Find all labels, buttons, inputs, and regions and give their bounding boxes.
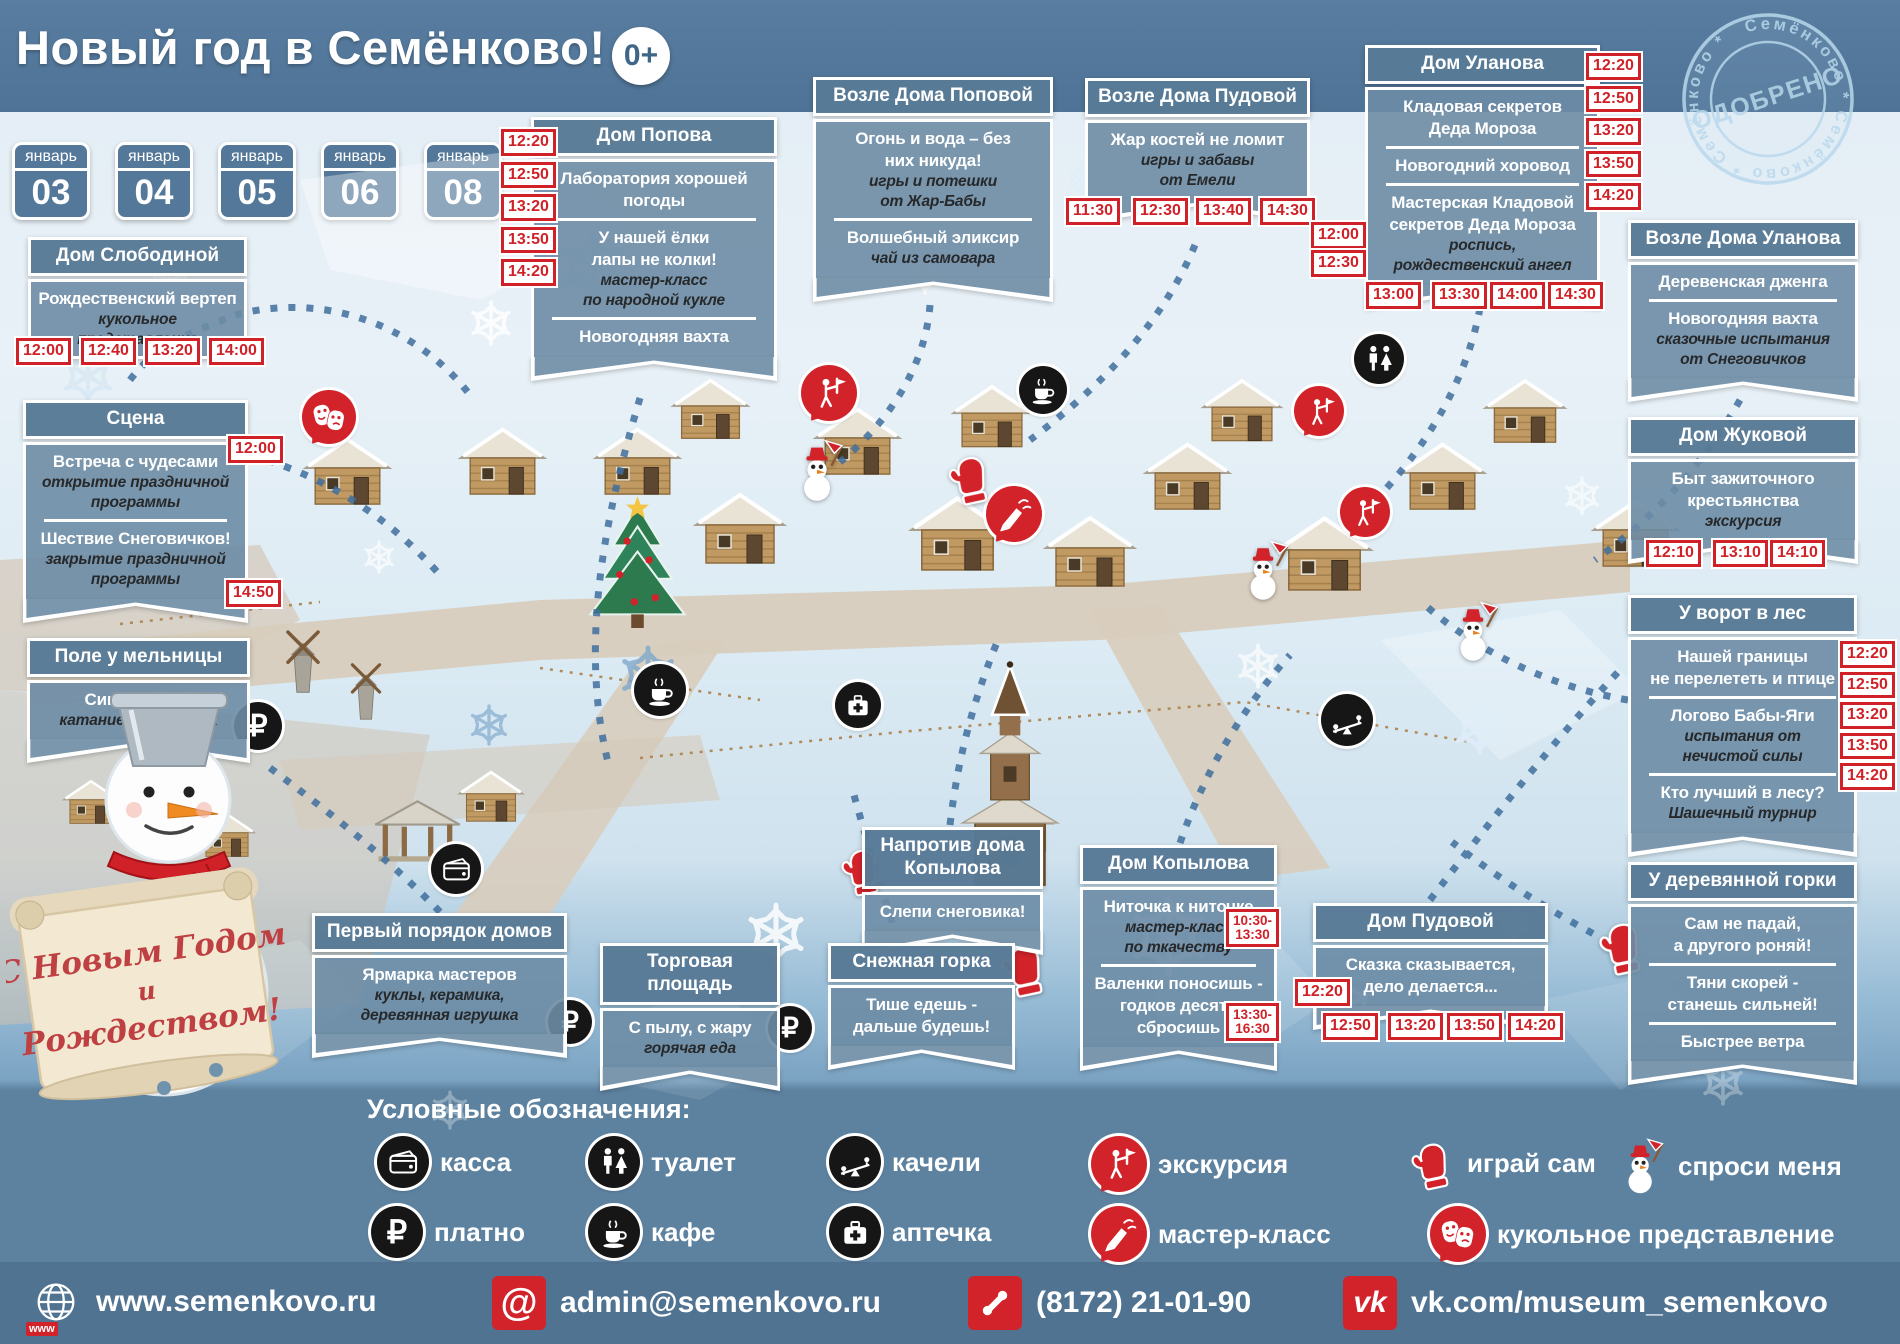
banner-dom-popova: Дом ПоповаЛаборатория хорошейпогодыУ наш… <box>531 117 777 381</box>
legend-item-спроси-меня: спроси меня <box>1615 1136 1842 1196</box>
banner-divider <box>1101 964 1256 967</box>
master-class-icon <box>1091 1206 1147 1262</box>
event-entry: Лаборатория хорошейпогоды <box>538 168 770 212</box>
event-text: Сказка сказывается, <box>1320 954 1541 976</box>
banner-body: Ярмарка мастеровкуклы, керамика,деревянн… <box>312 955 567 1034</box>
ruble-glyph: ₽ <box>781 1012 798 1044</box>
time-badge: 14:10 <box>1770 540 1825 567</box>
event-text: кукольное <box>35 310 240 330</box>
event-text: Валенки поносишь - <box>1087 973 1270 995</box>
legend-item-касса: касса <box>377 1136 511 1188</box>
banner-title: У ворот в лес <box>1628 595 1857 634</box>
event-entry: Кладовая секретовДеда Мороза <box>1372 96 1593 140</box>
event-text: Шествие Снеговичков! <box>30 528 241 550</box>
first-aid-icon <box>829 1206 881 1258</box>
time-badge: 12:50 <box>1840 672 1895 699</box>
event-entry: Огонь и вода – безних никуда!игры и поте… <box>820 128 1046 212</box>
banner-title: Дом Слободиной <box>28 237 247 276</box>
event-entry: Жар костей не ломитигры и забавыот Емели <box>1092 129 1303 191</box>
event-entry: Новогодний хоровод <box>1372 155 1593 177</box>
event-text: сказочные испытания <box>1635 330 1851 350</box>
time-badge: 11:30 <box>1066 198 1120 225</box>
event-text: открытие праздничной <box>30 473 241 493</box>
seesaw-icon <box>1321 694 1373 746</box>
event-text: чай из самовара <box>820 249 1046 269</box>
event-text: закрытие праздничной <box>30 550 241 570</box>
event-entry: Шествие Снеговичков!закрытие праздничной… <box>30 528 241 590</box>
time-badge: 13:20 <box>1388 1013 1443 1040</box>
event-text: Рождественский вертеп <box>35 288 240 310</box>
event-text: Деревенская дженга <box>1635 271 1851 293</box>
legend-label: аптечка <box>892 1217 991 1248</box>
banner-vozle-doma-ulanova: Возле Дома УлановаДеревенская дженгаНово… <box>1628 220 1858 402</box>
event-entry: Слепи снеговика! <box>869 901 1036 923</box>
banner-title: Дом Попова <box>531 117 777 156</box>
event-text: Огонь и вода – без <box>820 128 1046 150</box>
banner-title: Торговаяплощадь <box>600 943 780 1005</box>
legend-item-туалет: туалет <box>588 1136 736 1188</box>
time-badge: 13:00 <box>1366 282 1421 309</box>
event-text: деревянная игрушка <box>319 1006 560 1026</box>
event-entry: Новогодняя вахта <box>538 326 770 348</box>
banner-body: Огонь и вода – безних никуда!игры и поте… <box>813 119 1053 278</box>
event-text: Встреча с чудесами <box>30 451 241 473</box>
time-badge: 12:30 <box>1311 250 1366 277</box>
legend-item-качели: качели <box>829 1136 981 1188</box>
banner-body: Сам не падай,а другого роняй!Тяни скорей… <box>1628 904 1857 1061</box>
approved-stamp: Семёнково * Семёнково * Семёнково * ОДОБ… <box>1645 2 1895 202</box>
legend-item-экскурсия: экскурсия <box>1091 1136 1288 1192</box>
cash-desk-icon <box>431 844 481 894</box>
event-text: Новогодний хоровод <box>1372 155 1593 177</box>
legend-label: играй сам <box>1467 1148 1596 1179</box>
time-badge: 13:50 <box>1447 1013 1502 1040</box>
event-text: крестьянства <box>1635 490 1851 512</box>
event-text: а другого роняй! <box>1635 935 1850 957</box>
time-badge: 12:50 <box>1323 1013 1378 1040</box>
legend-item-играй-сам: играй сам <box>1404 1136 1596 1191</box>
vk-icon: vk <box>1343 1276 1397 1330</box>
ask-me-snowman-icon <box>789 437 847 504</box>
snowman-mascot: С Новым Годом и Рождеством! <box>6 640 346 1130</box>
event-text: от Снеговичков <box>1635 350 1851 370</box>
event-text: Тише едешь - <box>835 994 1008 1016</box>
excursion-icon <box>801 365 857 421</box>
legend-title: Условные обозначения: <box>367 1094 691 1125</box>
time-badge: 12:20 <box>1295 979 1350 1006</box>
banner-body: Жар костей не ломитигры и забавыот Емели <box>1085 120 1310 199</box>
time-badge: 12:00 <box>228 436 283 463</box>
time-badge: 13:20 <box>501 194 556 221</box>
legend-label: мастер-класс <box>1158 1219 1331 1250</box>
globe-icon: www <box>30 1276 82 1328</box>
banner-title: Сцена <box>23 400 248 439</box>
toilet-icon <box>1354 334 1404 384</box>
banner-title: Возле Дома Уланова <box>1628 220 1858 259</box>
ask-me-snowman-icon <box>1236 538 1292 603</box>
event-text: экскурсия <box>1635 512 1851 532</box>
excursion-icon <box>1091 1136 1147 1192</box>
time-badge: 10:30- 13:30 <box>1226 909 1279 947</box>
contact-text[interactable]: vk.com/museum_semenkovo <box>1411 1286 1828 1320</box>
event-entry: Деревенская дженга <box>1635 271 1851 293</box>
legend-label: туалет <box>651 1147 736 1178</box>
time-badge: 13:20 <box>1586 118 1641 145</box>
www-mini-badge: www <box>26 1322 58 1336</box>
banner-title: Дом Копылова <box>1080 845 1277 884</box>
ruble-glyph: ₽ <box>387 1213 408 1251</box>
time-badge: 14:30 <box>1548 282 1603 309</box>
legend-label: экскурсия <box>1158 1149 1288 1180</box>
banner-title: Снежная горка <box>828 943 1015 982</box>
banner-title: Напротив домаКопылова <box>862 827 1043 889</box>
event-entry: Сказка сказывается,дело делается... <box>1320 954 1541 998</box>
banner-perviy-poryadok-domov: Первый порядок домовЯрмарка мастеровкукл… <box>312 913 567 1058</box>
time-badge: 12:10 <box>1646 540 1701 567</box>
banner-title: Возле Дома Пудовой <box>1085 78 1310 117</box>
legend-label: качели <box>892 1147 981 1178</box>
time-badge: 14:20 <box>1840 763 1895 790</box>
contact-text[interactable]: (8172) 21-01-90 <box>1036 1286 1251 1320</box>
time-badge: 13:30- 16:30 <box>1226 1003 1279 1041</box>
legend-label: кукольное представление <box>1497 1219 1834 1250</box>
event-text: секретов Деда Мороза <box>1372 214 1593 236</box>
ask-me-snowman-icon <box>1446 599 1502 664</box>
event-text: дальше будешь! <box>835 1016 1008 1038</box>
event-text: Лаборатория хорошей <box>538 168 770 190</box>
banner-vozle-doma-pudovoy: Возле Дома ПудовойЖар костей не ломитигр… <box>1085 78 1310 223</box>
cafe-icon <box>1019 366 1067 414</box>
time-badge: 13:20 <box>145 338 200 365</box>
banner-snezhnaya-gorka: Снежная горкаТише едешь -дальше будешь! <box>828 943 1015 1070</box>
time-badge: 14:50 <box>226 580 281 607</box>
time-badge: 13:20 <box>1840 702 1895 729</box>
time-badge: 13:30 <box>1432 282 1487 309</box>
excursion-icon <box>1294 386 1344 436</box>
banner-u-derevyannoy-gorki: У деревянной горкиСам не падай,а другого… <box>1628 862 1857 1085</box>
banner-dom-slobodinoy: Дом СлободинойРождественский вертепкукол… <box>28 237 247 359</box>
event-text: горячая еда <box>607 1039 773 1059</box>
time-badge: 14:00 <box>1490 282 1545 309</box>
banner-divider <box>834 218 1032 221</box>
event-text: Слепи снеговика! <box>869 901 1036 923</box>
event-text: Сам не падай, <box>1635 913 1850 935</box>
banner-vozle-doma-popovoy: Возле Дома ПоповойОгонь и вода – безних … <box>813 77 1053 302</box>
time-badge: 13:50 <box>501 227 556 254</box>
event-text: Ярмарка мастеров <box>319 964 560 986</box>
event-text: дело делается... <box>1320 976 1541 998</box>
event-map-poster: Новый год в Семёнково! 0+ Семёнково * Се… <box>0 0 1900 1344</box>
event-text: погоды <box>538 190 770 212</box>
banner-title: У деревянной горки <box>1628 862 1857 901</box>
mitten-icon <box>1399 1131 1461 1196</box>
event-text: Кто лучший в лесу? <box>1635 782 1850 804</box>
banner-title: Дом Пудовой <box>1313 903 1548 942</box>
banner-divider <box>552 317 756 320</box>
event-text: испытания от <box>1635 727 1850 747</box>
event-text: Мастерская Кладовой <box>1372 192 1593 214</box>
event-text: Волшебный эликсир <box>820 227 1046 249</box>
contact-text[interactable]: www.semenkovo.ru <box>96 1285 377 1319</box>
banner-body: С пылу, с жаругорячая еда <box>600 1008 780 1067</box>
event-entry: Мастерская Кладовойсекретов Деда Морозар… <box>1372 192 1593 276</box>
contact-text[interactable]: admin@semenkovo.ru <box>560 1286 881 1320</box>
banner-title: Возле Дома Поповой <box>813 77 1053 116</box>
play-yourself-mitten-icon <box>936 444 1001 511</box>
contact-at-icon[interactable]: @admin@semenkovo.ru <box>492 1276 881 1330</box>
event-text: программы <box>30 570 241 590</box>
event-text: Логово Бабы-Яги <box>1635 705 1850 727</box>
banner-body: Кладовая секретовДеда МорозаНовогодний х… <box>1365 87 1600 285</box>
event-text: Новогодняя вахта <box>1635 308 1851 330</box>
event-text: Деда Мороза <box>1372 118 1593 140</box>
toilet-icon <box>588 1136 640 1188</box>
banner-body: Лаборатория хорошейпогодыУ нашей ёлкилап… <box>531 159 777 357</box>
event-text: Кладовая секретов <box>1372 96 1593 118</box>
event-text: Нашей границы <box>1635 646 1850 668</box>
event-text: Быстрее ветра <box>1635 1031 1850 1053</box>
event-text: игры и забавы <box>1092 151 1303 171</box>
legend-label: спроси меня <box>1678 1151 1842 1182</box>
time-badge: 14:30 <box>1260 198 1315 225</box>
banner-divider <box>552 218 756 221</box>
banner-dom-zhukovoy: Дом ЖуковойБыт зажиточногокрестьянстваэк… <box>1628 417 1858 564</box>
event-text: Шашечный турнир <box>1635 804 1850 824</box>
banner-divider <box>1649 696 1836 699</box>
event-text: мастер-класс <box>538 271 770 291</box>
legend-item-кукольное-представление: кукольное представление <box>1430 1206 1834 1262</box>
event-text: от Жар-Бабы <box>820 192 1046 212</box>
cash-desk-icon <box>377 1136 429 1188</box>
excursion-icon <box>1340 487 1390 537</box>
banner-dom-ulanova: Дом УлановаКладовая секретовДеда МорозаН… <box>1365 45 1600 309</box>
banner-body: Деревенская дженгаНовогодняя вахтасказоч… <box>1628 262 1858 378</box>
event-entry: Нашей границыне перелететь и птице <box>1635 646 1850 690</box>
event-text: станешь сильней! <box>1635 994 1850 1016</box>
phone-icon <box>968 1276 1022 1330</box>
banner-title: Дом Жуковой <box>1628 417 1858 456</box>
event-text: лапы не колки! <box>538 249 770 271</box>
time-badge: 12:20 <box>501 129 556 156</box>
first-aid-icon <box>835 682 881 728</box>
event-text: по народной кукле <box>538 291 770 311</box>
event-entry: Волшебный эликсирчай из самовара <box>820 227 1046 269</box>
event-entry: Быт зажиточногокрестьянстваэкскурсия <box>1635 468 1851 532</box>
event-entry: Сам не падай,а другого роняй! <box>1635 913 1850 957</box>
time-badge: 14:20 <box>1586 183 1641 210</box>
cafe-icon <box>634 664 686 716</box>
event-text: них никуда! <box>820 150 1046 172</box>
event-entry: Быстрее ветра <box>1635 1031 1850 1053</box>
time-badge: 13:50 <box>1840 733 1895 760</box>
legend-label: касса <box>440 1147 511 1178</box>
time-badge: 12:20 <box>1586 53 1641 80</box>
time-badge: 14:20 <box>1508 1013 1563 1040</box>
banner-title: Первый порядок домов <box>312 913 567 952</box>
banner-body: Встреча с чудесамиоткрытие праздничнойпр… <box>23 442 248 599</box>
banner-body: Слепи снеговика! <box>862 892 1043 931</box>
banner-dom-pudovoy: Дом ПудовойСказка сказывается,дело делае… <box>1313 903 1548 1030</box>
banner-u-vorot-v-les: У ворот в лесНашей границыне перелететь … <box>1628 595 1857 857</box>
event-text: Новогодняя вахта <box>538 326 770 348</box>
puppet-show-icon <box>1430 1206 1486 1262</box>
event-entry: С пылу, с жаругорячая еда <box>607 1017 773 1059</box>
time-badge: 12:30 <box>1133 198 1188 225</box>
contact-phone-icon[interactable]: (8172) 21-01-90 <box>968 1276 1251 1330</box>
event-text: Быт зажиточного <box>1635 468 1851 490</box>
time-badge: 13:10 <box>1713 540 1768 567</box>
event-text: рождественский ангел <box>1372 256 1593 276</box>
banner-divider <box>1649 299 1837 302</box>
event-entry: У нашей ёлкилапы не колки!мастер-класспо… <box>538 227 770 311</box>
time-badge: 13:40 <box>1196 198 1251 225</box>
time-badge: 12:00 <box>1311 222 1366 249</box>
puppet-show-icon <box>302 390 356 444</box>
snowman-icon <box>1615 1136 1667 1196</box>
paid-icon: ₽ <box>371 1206 423 1258</box>
time-badge: 13:50 <box>1586 151 1641 178</box>
event-text: Жар костей не ломит <box>1092 129 1303 151</box>
event-text: куклы, керамика, <box>319 986 560 1006</box>
banner-body: Тише едешь -дальше будешь! <box>828 985 1015 1046</box>
banner-dom-kopylova: Дом КопыловаНиточка к ниточкемастер-клас… <box>1080 845 1277 1071</box>
time-badge: 14:20 <box>501 259 556 286</box>
time-badge: 12:50 <box>1586 86 1641 113</box>
event-text: У нашей ёлки <box>538 227 770 249</box>
banner-divider <box>1386 146 1579 149</box>
legend-item-аптечка: аптечка <box>829 1206 991 1258</box>
event-entry: Ярмарка мастеровкуклы, керамика,деревянн… <box>319 964 560 1026</box>
event-text: нечистой силы <box>1635 747 1850 767</box>
legend-label: платно <box>434 1217 525 1248</box>
event-entry: Встреча с чудесамиоткрытие праздничнойпр… <box>30 451 241 513</box>
event-text: программы <box>30 493 241 513</box>
legend-item-платно: ₽платно <box>371 1206 525 1258</box>
banner-divider <box>1649 963 1836 966</box>
banner-divider <box>44 519 227 522</box>
event-entry: Тяни скорей -станешь сильней! <box>1635 972 1850 1016</box>
time-badge: 12:00 <box>16 338 71 365</box>
legend-item-кафе: кафе <box>588 1206 715 1258</box>
event-text: Тяни скорей - <box>1635 972 1850 994</box>
contact-vk-icon[interactable]: vkvk.com/museum_semenkovo <box>1343 1276 1828 1330</box>
time-badge: 12:40 <box>81 338 136 365</box>
at-icon: @ <box>492 1276 546 1330</box>
seesaw-icon <box>829 1136 881 1188</box>
event-text: роспись, <box>1372 236 1593 256</box>
event-text: С пылу, с жару <box>607 1017 773 1039</box>
banner-body: Нашей границыне перелететь и птицеЛогово… <box>1628 637 1857 833</box>
banner-naprotiv-doma-kopylova: Напротив домаКопыловаСлепи снеговика! <box>862 827 1043 955</box>
contact-globe-icon[interactable]: wwwwww.semenkovo.ru <box>30 1276 377 1328</box>
banner-title: Дом Уланова <box>1365 45 1600 84</box>
event-entry: Логово Бабы-Ягииспытания отнечистой силы <box>1635 705 1850 767</box>
banner-scena: СценаВстреча с чудесамиоткрытие празднич… <box>23 400 248 623</box>
banner-divider <box>1386 183 1579 186</box>
event-entry: Тише едешь -дальше будешь! <box>835 994 1008 1038</box>
event-text: от Емели <box>1092 171 1303 191</box>
event-entry: Кто лучший в лесу?Шашечный турнир <box>1635 782 1850 824</box>
time-badge: 12:20 <box>1840 641 1895 668</box>
legend-label: кафе <box>651 1217 715 1248</box>
banner-divider <box>1649 1022 1836 1025</box>
event-text: игры и потешки <box>820 172 1046 192</box>
cafe-icon <box>588 1206 640 1258</box>
event-text: не перелететь и птице <box>1635 668 1850 690</box>
banner-divider <box>1649 773 1836 776</box>
legend-item-мастер-класс: мастер-класс <box>1091 1206 1331 1262</box>
event-entry: Новогодняя вахтасказочные испытанияот Сн… <box>1635 308 1851 370</box>
time-badge: 14:00 <box>209 338 264 365</box>
banner-body: Быт зажиточногокрестьянстваэкскурсия <box>1628 459 1858 540</box>
time-badge: 12:50 <box>501 162 556 189</box>
banner-torgovaya-ploschad: ТорговаяплощадьС пылу, с жаругорячая еда <box>600 943 780 1091</box>
